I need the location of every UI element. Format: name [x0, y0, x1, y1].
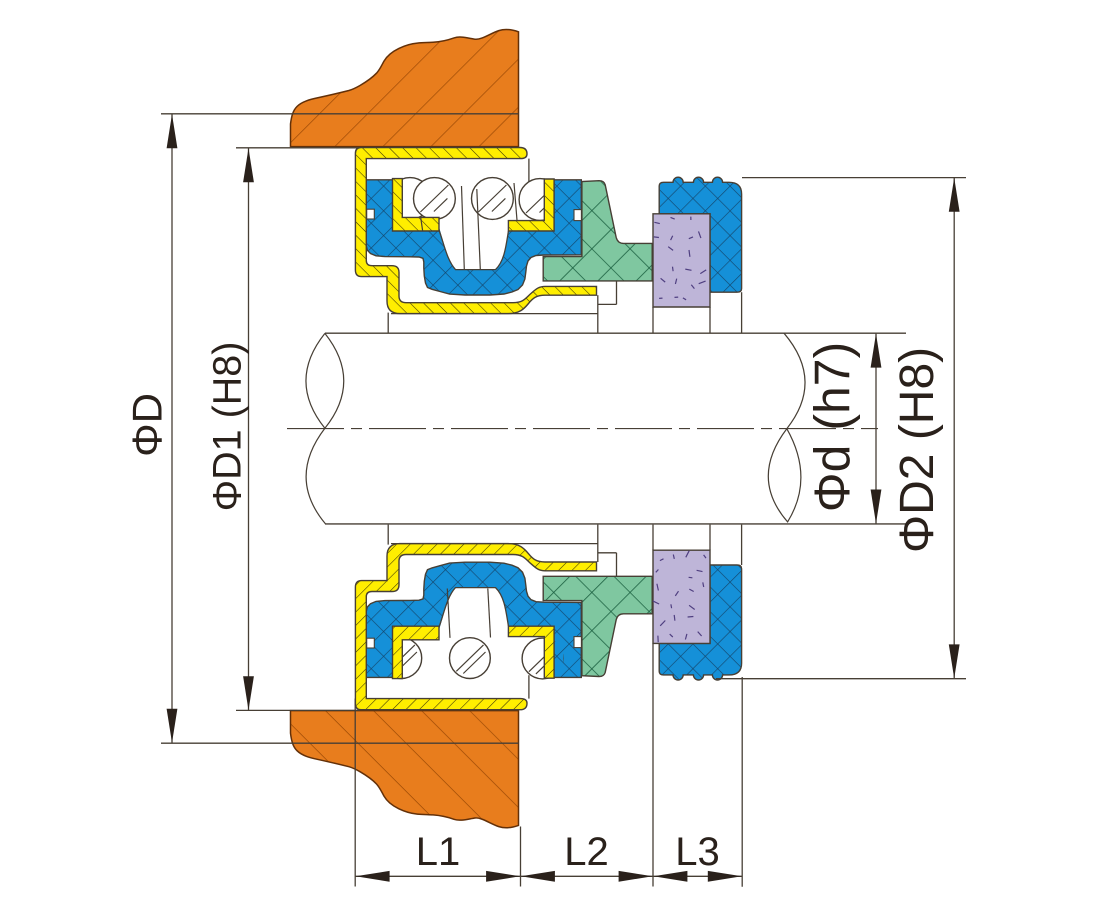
svg-text:Φd (h7): Φd (h7)	[805, 342, 861, 513]
svg-text:ΦD2 (H8): ΦD2 (H8)	[891, 347, 944, 553]
svg-text:ΦD: ΦD	[124, 393, 171, 457]
svg-text:L3: L3	[675, 830, 720, 874]
svg-text:L2: L2	[564, 830, 609, 874]
svg-text:L1: L1	[416, 830, 461, 874]
svg-text:ΦD1 (H8): ΦD1 (H8)	[206, 342, 250, 512]
